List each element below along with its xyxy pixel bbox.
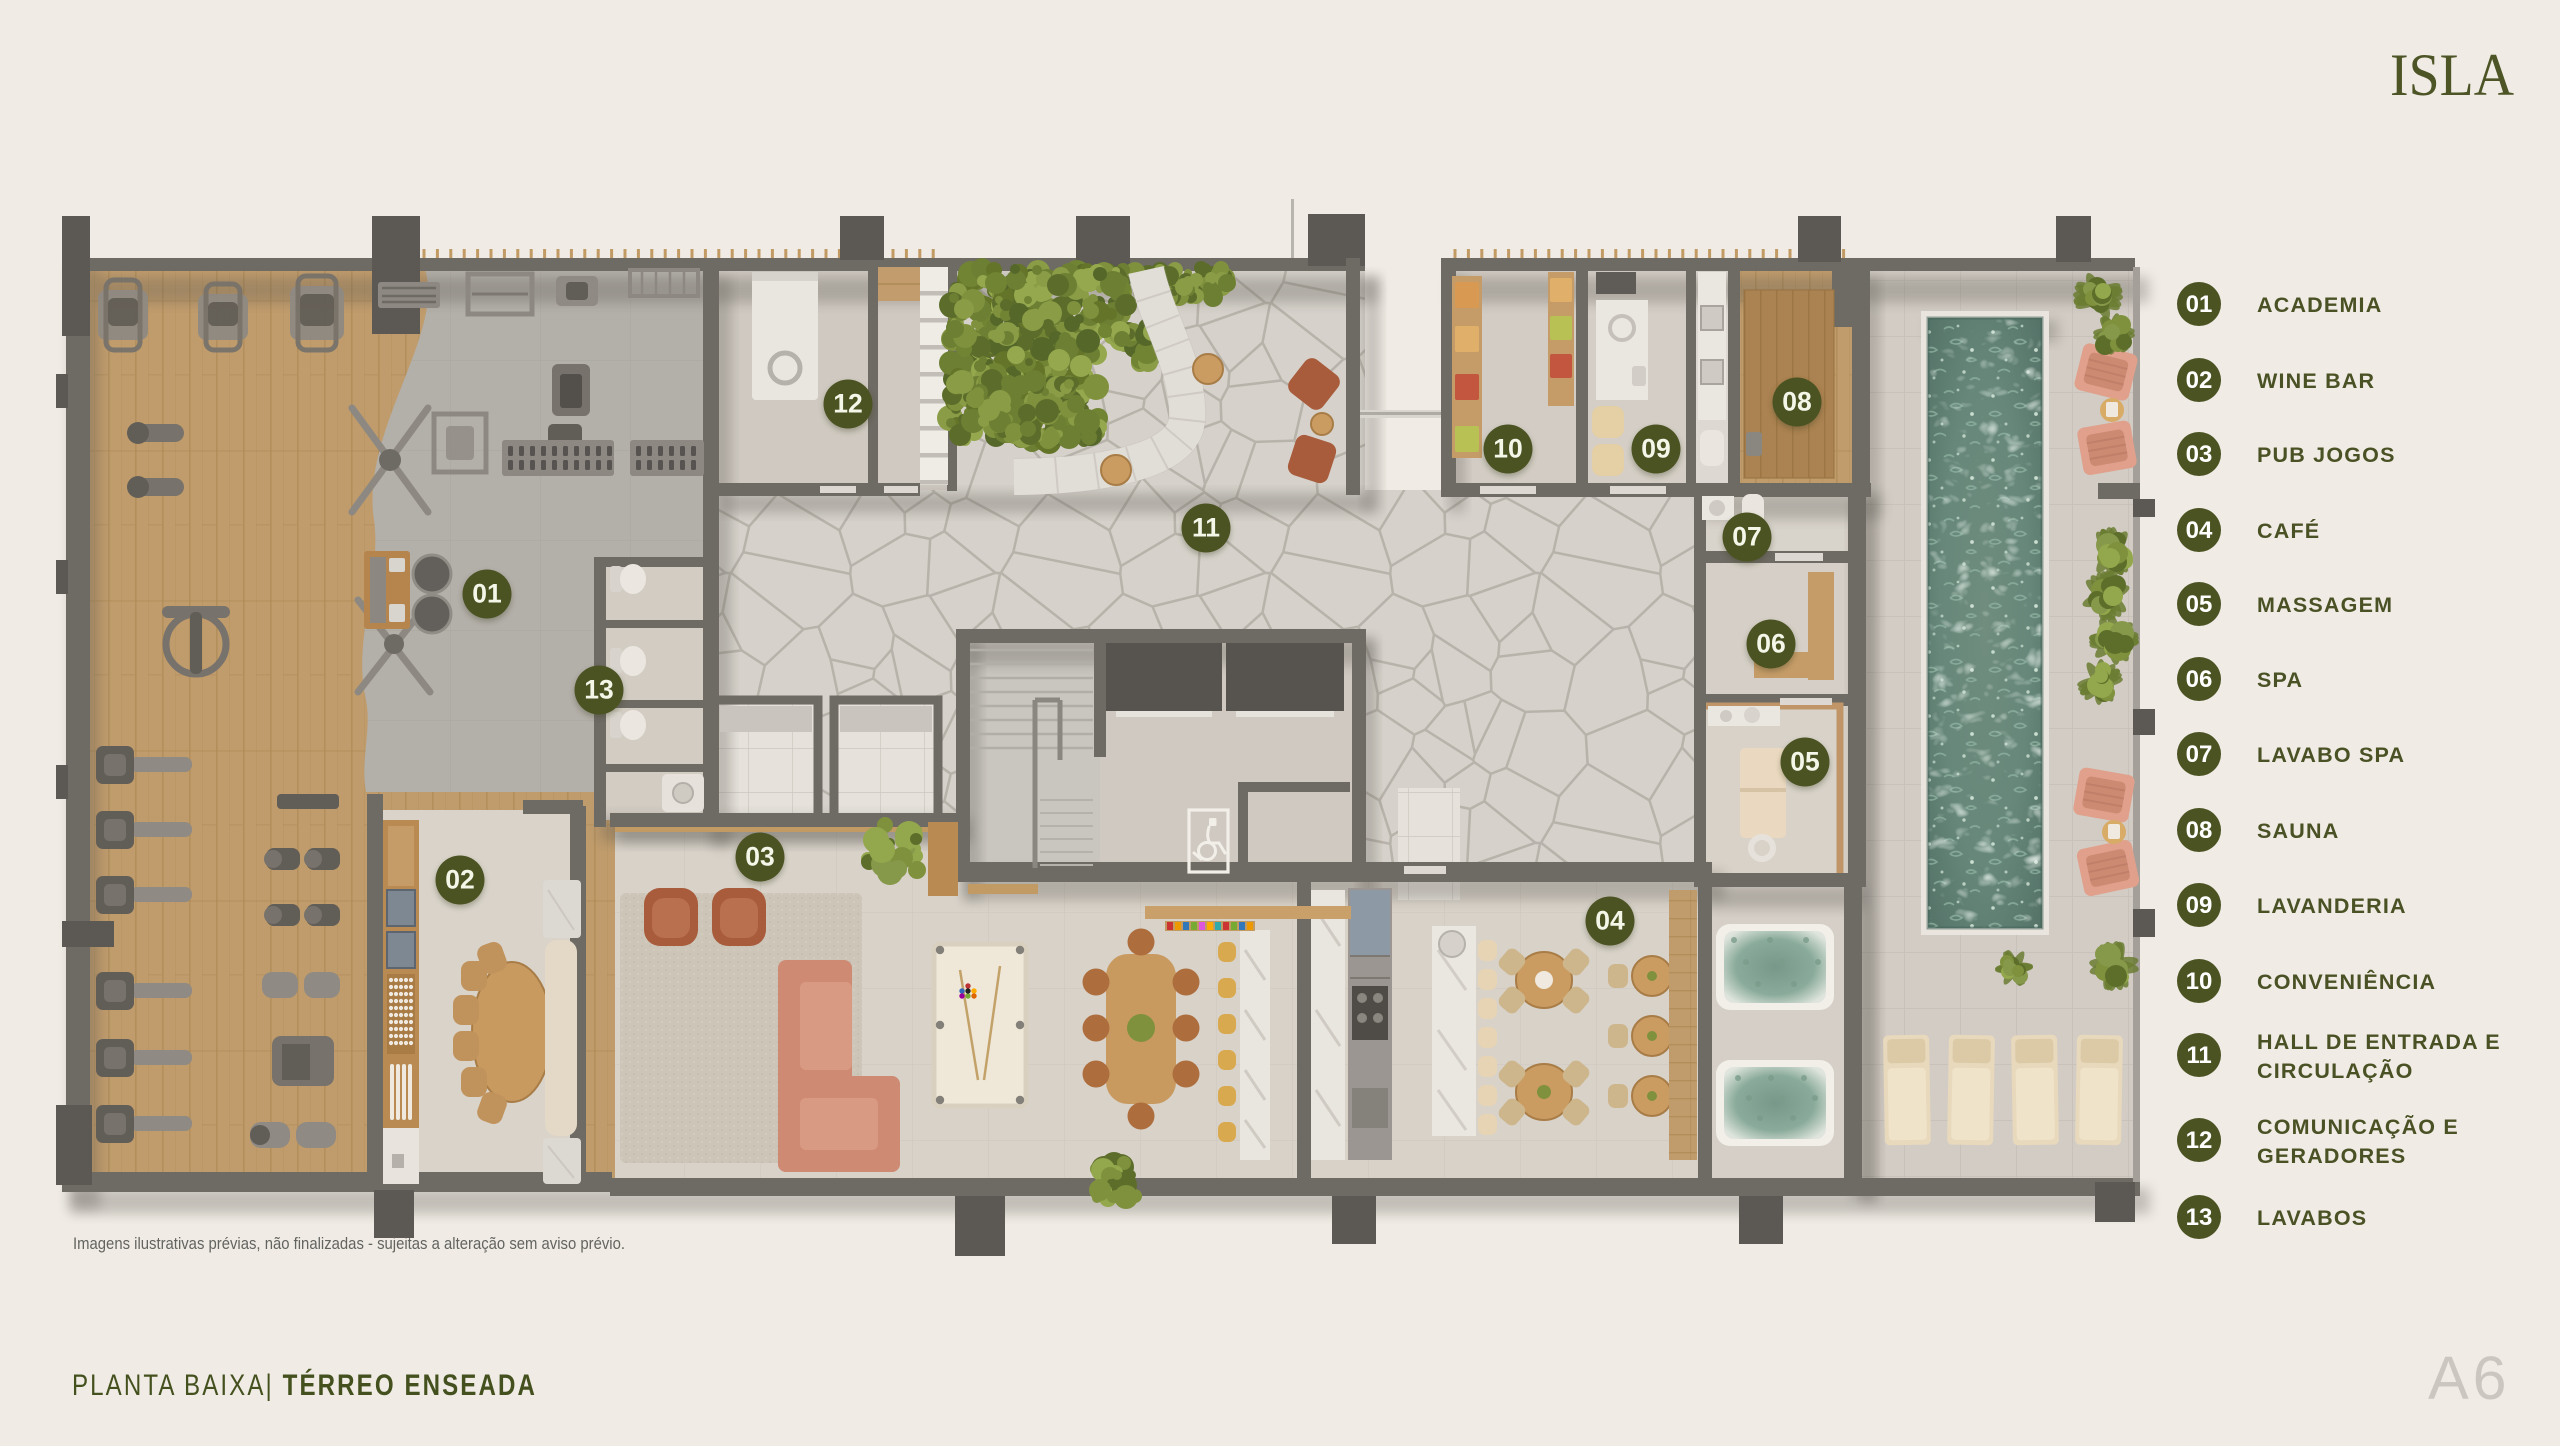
svg-text:11: 11 [2186,1042,2211,1069]
svg-text:06: 06 [1756,629,1785,659]
svg-text:05: 05 [2186,591,2213,618]
svg-text:12: 12 [833,389,862,419]
svg-text:13: 13 [2186,1204,2213,1231]
svg-text:07: 07 [1732,522,1761,552]
svg-text:SPA: SPA [2257,668,2303,692]
svg-text:10: 10 [1493,434,1522,464]
svg-text:PUB JOGOS: PUB JOGOS [2257,443,2396,467]
svg-text:SAUNA: SAUNA [2257,819,2339,843]
svg-text:A6: A6 [2428,1344,2511,1412]
svg-text:Imagens ilustrativas prévias,: Imagens ilustrativas prévias, não finali… [73,1235,625,1253]
svg-text:09: 09 [2186,892,2213,919]
svg-text:ISLA: ISLA [2390,42,2514,108]
svg-text:13: 13 [584,675,613,705]
svg-text:02: 02 [445,865,474,895]
svg-text:09: 09 [1641,434,1670,464]
svg-text:MASSAGEM: MASSAGEM [2257,593,2393,617]
svg-text:CONVENIÊNCIA: CONVENIÊNCIA [2257,969,2436,994]
svg-text:CIRCULAÇÃO: CIRCULAÇÃO [2257,1058,2414,1083]
svg-text:COMUNICAÇÃO E: COMUNICAÇÃO E [2257,1114,2459,1139]
svg-text:04: 04 [2186,517,2213,544]
svg-text:12: 12 [2186,1127,2213,1154]
svg-text:WINE BAR: WINE BAR [2257,369,2375,393]
svg-text:CAFÉ: CAFÉ [2257,518,2320,543]
svg-text:03: 03 [2186,441,2213,468]
svg-text:08: 08 [2186,817,2213,844]
svg-text:GERADORES: GERADORES [2257,1144,2406,1168]
svg-text:HALL DE ENTRADA E: HALL DE ENTRADA E [2257,1030,2501,1054]
svg-text:10: 10 [2186,968,2213,995]
svg-text:LAVABOS: LAVABOS [2257,1206,2367,1230]
svg-text:PLANTA BAIXA| TÉRREO ENSEADA: PLANTA BAIXA| TÉRREO ENSEADA [72,1368,537,1402]
svg-text:08: 08 [1782,387,1811,417]
svg-text:LAVABO SPA: LAVABO SPA [2257,743,2405,767]
svg-text:04: 04 [1595,906,1625,936]
svg-text:ACADEMIA: ACADEMIA [2257,293,2382,317]
svg-text:03: 03 [745,842,774,872]
svg-text:05: 05 [1790,747,1819,777]
svg-text:02: 02 [2186,367,2213,394]
svg-text:LAVANDERIA: LAVANDERIA [2257,894,2407,918]
svg-text:11: 11 [1192,513,1220,543]
svg-text:06: 06 [2186,666,2213,693]
svg-text:07: 07 [2186,741,2213,768]
svg-text:01: 01 [2186,291,2213,318]
svg-text:01: 01 [472,579,501,609]
